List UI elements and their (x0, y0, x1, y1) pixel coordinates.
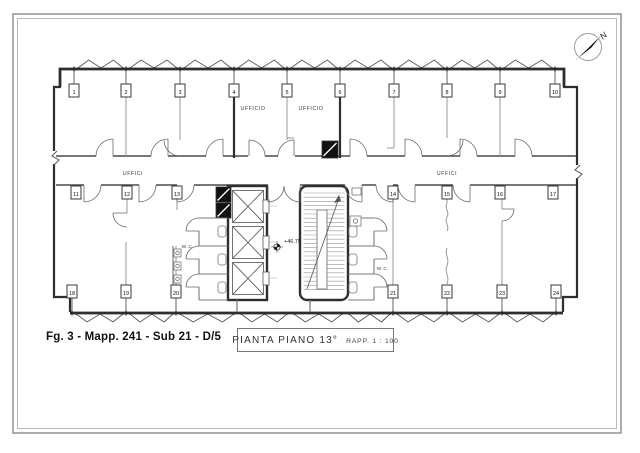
window-marker: 19 (121, 285, 131, 316)
north-compass: N (575, 29, 610, 60)
window-marker-number: 11 (73, 192, 79, 198)
window-marker: 12 (122, 186, 132, 199)
window-marker: 20 (171, 285, 181, 316)
window-marker: 17 (548, 186, 558, 199)
title-block: PIANTA PIANO 13° RAPP. 1 : 100 (237, 328, 394, 352)
staircase (300, 186, 348, 300)
window-marker-number: 15 (444, 192, 450, 198)
window-marker-number: 4 (232, 90, 235, 96)
room-label: UFFICI (437, 171, 457, 177)
room-label: UFFICIO (299, 106, 324, 112)
drawing-sheet: N (0, 0, 640, 453)
window-marker-number: 24 (553, 291, 559, 297)
window-marker: 16 (495, 186, 505, 199)
elevator-doors (263, 200, 269, 285)
window-marker-number: 7 (392, 90, 395, 96)
plan-scale: RAPP. 1 : 100 (346, 338, 399, 345)
window-marker-number: 20 (173, 291, 179, 297)
window-marker-number: 13 (174, 192, 180, 198)
window-marker: 8 (442, 67, 452, 98)
window-marker-number: 16 (497, 192, 503, 198)
window-marker-number: 12 (124, 192, 130, 198)
cadastral-caption: Fg. 3 - Mapp. 241 - Sub 21 - D/5 (46, 331, 221, 343)
window-marker: 10 (550, 67, 560, 98)
room-label: W.C. (182, 244, 195, 250)
window-marker-number: 8 (445, 90, 448, 96)
window-marker: 23 (497, 285, 507, 316)
window-marker: 13 (172, 186, 182, 199)
window-marker: 21 (388, 285, 398, 316)
toilets-right (348, 188, 374, 300)
window-marker-number: 21 (390, 291, 396, 297)
window-marker: 2 (121, 67, 131, 98)
window-marker-number: 3 (178, 90, 181, 96)
window-marker-number: 2 (124, 90, 127, 96)
room-label: UFFICIO (241, 106, 266, 112)
window-marker-number: 22 (444, 291, 450, 297)
room-label: UFFICI (123, 171, 143, 177)
window-marker-number: 23 (499, 291, 505, 297)
window-marker-number: 5 (285, 90, 288, 96)
window-marker: 7 (389, 67, 399, 98)
window-marker-number: 14 (390, 192, 396, 198)
window-marker: 1 (69, 67, 79, 98)
window-marker: 15 (442, 186, 452, 199)
window-marker: 4 (229, 67, 239, 98)
window-marker: 11 (71, 186, 81, 199)
window-marker: 6 (335, 67, 345, 98)
elevator-core (228, 186, 277, 300)
window-marker-number: 1 (72, 90, 75, 96)
window-marker-number: 6 (338, 90, 341, 96)
window-marker: 3 (175, 67, 185, 98)
room-label: W.C. (377, 266, 390, 272)
window-marker: 14 (388, 186, 398, 199)
window-marker: 9 (495, 67, 505, 98)
window-marker: 18 (67, 285, 77, 316)
window-marker-number: 19 (123, 291, 129, 297)
plan-title: PIANTA PIANO 13° (232, 335, 338, 346)
elevation-label: +46.75 (284, 239, 301, 245)
window-marker-number: 9 (498, 90, 501, 96)
elevation-benchmark (271, 241, 283, 253)
floor-plan-drawing: N (0, 0, 640, 453)
window-marker: 22 (442, 285, 452, 316)
window-marker-number: 17 (550, 192, 556, 198)
window-marker-number: 10 (552, 90, 558, 96)
window-marker: 24 (551, 285, 561, 316)
window-marker: 5 (282, 67, 292, 98)
window-marker-number: 18 (69, 291, 75, 297)
